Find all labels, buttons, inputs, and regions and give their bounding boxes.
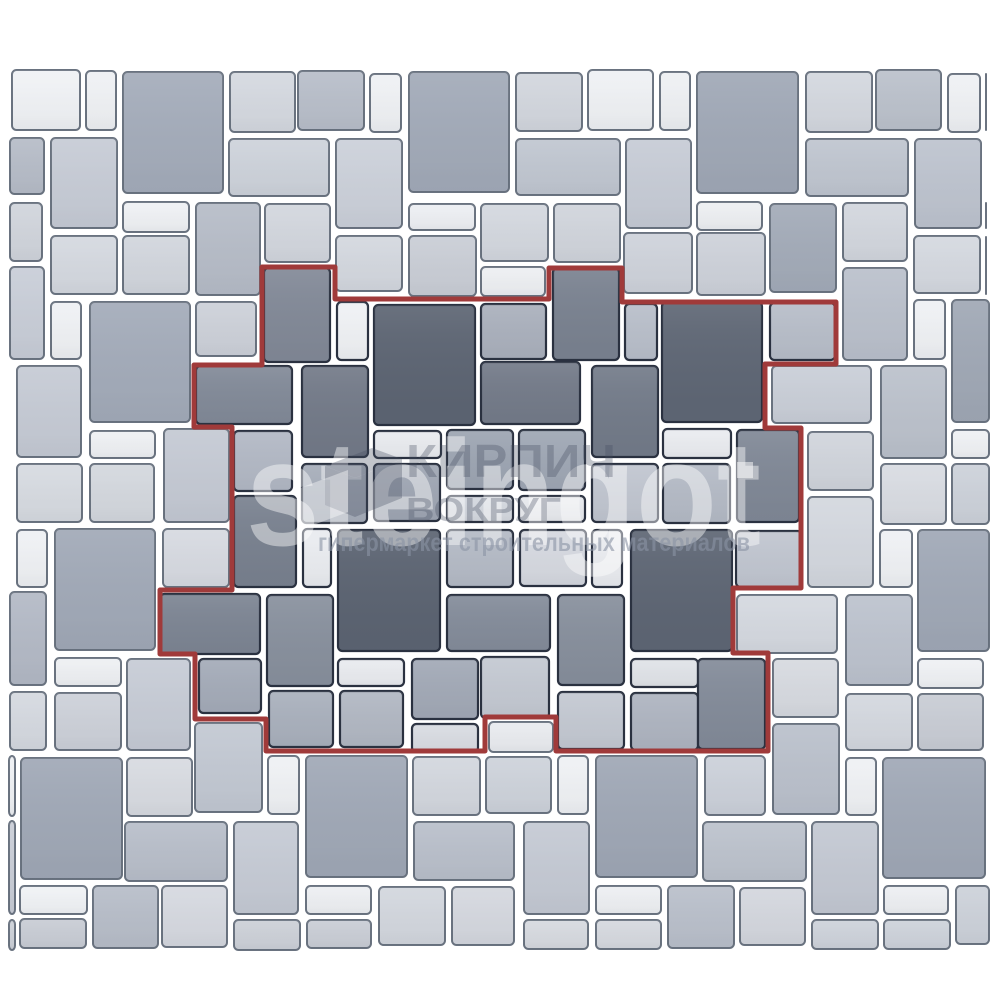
svg-text:КИРПИЧ: КИРПИЧ: [406, 435, 616, 487]
svg-text:ВОКРУГ: ВОКРУГ: [406, 491, 561, 528]
svg-text:гипермаркет строительных матер: гипермаркет строительных материалов: [318, 529, 750, 557]
